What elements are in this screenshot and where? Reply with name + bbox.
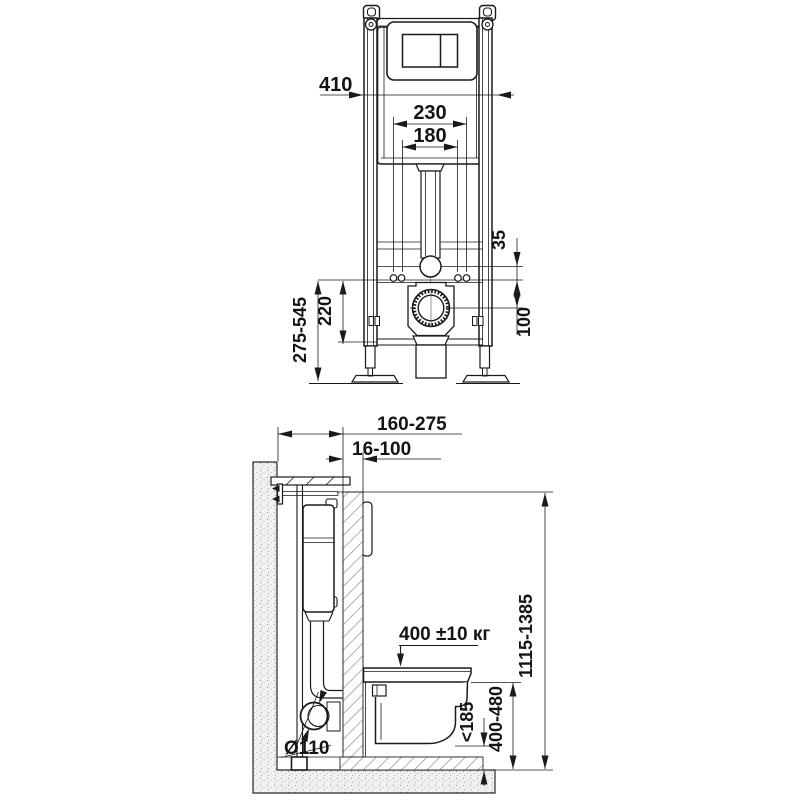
- front-view: [309, 6, 523, 384]
- dim-cladding-thickness: 16-100: [352, 439, 411, 460]
- feet-front: [309, 346, 520, 384]
- toilet-bowl-side: [364, 668, 472, 757]
- bowl-fixing-stud: [373, 685, 387, 696]
- dim-installation-depth: 160-275: [377, 414, 447, 435]
- dim-max-load: 400 ±10 кг: [399, 624, 490, 645]
- drain-pipe-front: [416, 345, 446, 378]
- floor-screed: [340, 757, 483, 770]
- flush-plate: [387, 22, 477, 80]
- dim-supply-offset: 35: [489, 230, 509, 250]
- drain-collar: [413, 336, 449, 345]
- drain-assembly-front: [408, 283, 523, 379]
- foot-plate-left: [352, 376, 398, 383]
- installation-drawing: { "drawing": { "description": "Installat…: [0, 0, 800, 800]
- water-supply-port: [420, 256, 441, 277]
- dim-fixing-outer: 230: [413, 102, 446, 124]
- cistern-side: [303, 499, 343, 698]
- tab-bolt-left: [366, 19, 377, 30]
- dim-drain-height: <185: [457, 702, 477, 743]
- frame-rail-left: [364, 18, 377, 346]
- drain-socket-side: [301, 702, 341, 731]
- frame-rail-right: [479, 18, 492, 346]
- dim-frame-width: 410: [319, 74, 352, 96]
- dim-frame-height: 1115-1385: [516, 594, 536, 678]
- flush-button-large: [403, 35, 458, 68]
- dim-bowl-height: 400-480: [486, 686, 506, 752]
- tab-bolt-right: [482, 19, 493, 30]
- dim-adjustable-height: 275-545: [290, 297, 310, 363]
- dim-fixing-inner: 180: [413, 125, 446, 147]
- flush-pipe-front: [416, 164, 444, 258]
- dim-drain-offset: 100: [514, 307, 534, 337]
- flush-pipe-side: [311, 621, 344, 698]
- technical-drawing-svg: 410 230 180 35 100 220 275-545: [0, 0, 800, 800]
- finished-wall: [343, 492, 363, 757]
- dim-drain-pipe-diameter: Ø110: [284, 738, 329, 759]
